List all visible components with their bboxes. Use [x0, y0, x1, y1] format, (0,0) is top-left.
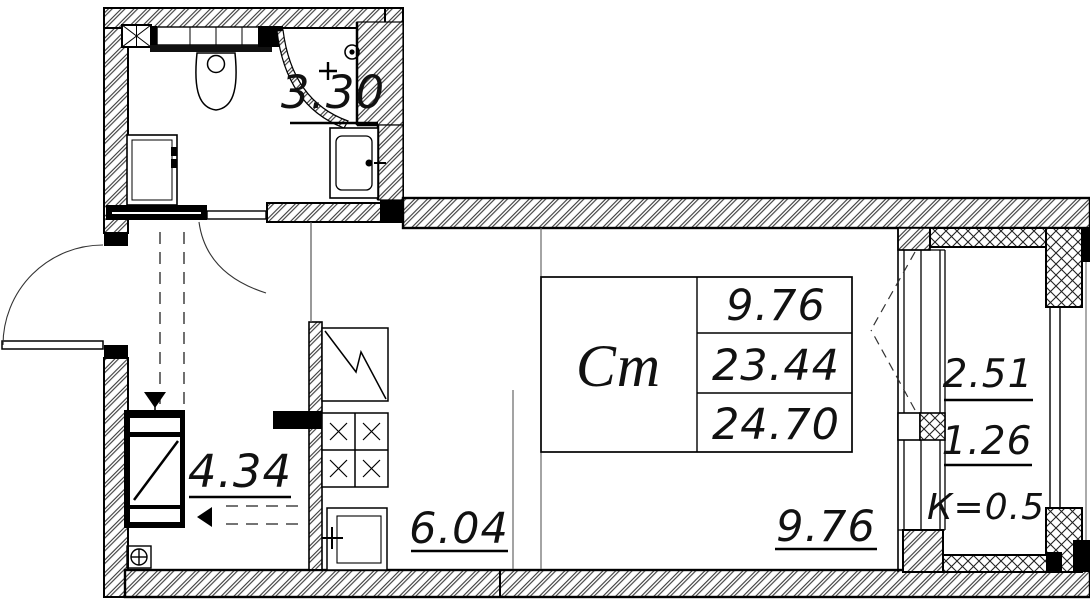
kitchen-area-label: 6.04: [409, 504, 509, 554]
stove: [322, 413, 388, 487]
living-area-label: 9.76: [776, 502, 876, 552]
bathroom-area-label: 3.30: [281, 66, 385, 119]
balcony-reduced-area-label: 1.26: [942, 419, 1033, 464]
kitchen-sink: [322, 508, 387, 570]
hallway-area-label: 4.34: [188, 445, 292, 498]
bathroom-door: [199, 211, 266, 293]
balcony-labels: 2.51 1.26 К=0.5: [927, 352, 1045, 528]
utility-shaft: [124, 410, 185, 528]
washbasin: [330, 128, 386, 198]
studio-label: Ст: [576, 333, 660, 399]
table-total-area: 24.70: [712, 400, 840, 450]
shower-tray: [127, 135, 177, 205]
vent-shaft-icon: [122, 25, 151, 47]
table-area-without-balcony: 23.44: [712, 341, 840, 391]
zone-lines: [513, 228, 541, 570]
balcony-coefficient-label: К=0.5: [927, 487, 1045, 528]
window-opening-indicator: [871, 252, 915, 410]
direction-arrow-icon: [197, 507, 212, 527]
fridge: [322, 328, 388, 401]
floor-plan: Ст 9.76 23.44 24.70 3.30 4.34 6.04 9.76 …: [0, 0, 1090, 600]
bath-counter: [150, 26, 272, 52]
table-living-area: 9.76: [726, 281, 826, 331]
toilet: [196, 53, 236, 110]
entry-door: [2, 245, 103, 349]
hall-kitchen-partition: [273, 222, 322, 570]
drain-mark-icon: [127, 546, 151, 568]
balcony-area-label: 2.51: [943, 352, 1034, 397]
area-table: Ст 9.76 23.44 24.70: [541, 277, 852, 452]
floor-plan-canvas: Ст 9.76 23.44 24.70 3.30 4.34 6.04 9.76 …: [0, 0, 1090, 600]
